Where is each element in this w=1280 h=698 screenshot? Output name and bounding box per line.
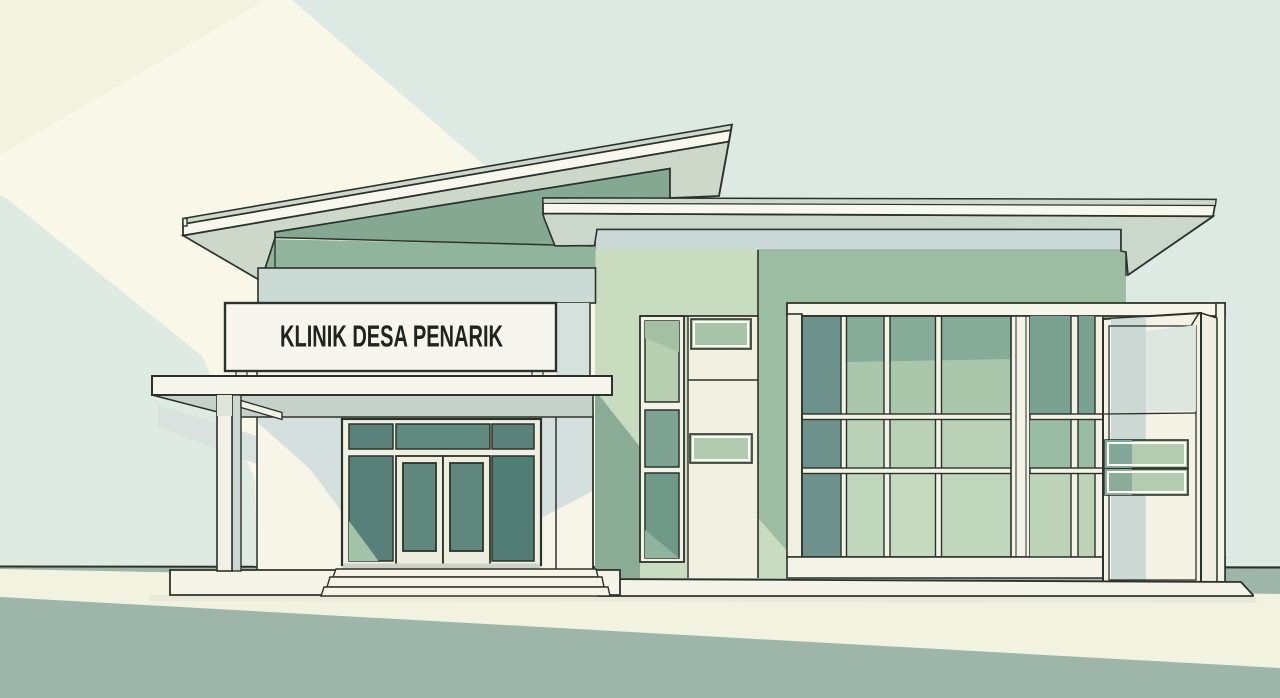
svg-text:KLINIK DESA PENARIK: KLINIK DESA PENARIK	[280, 319, 503, 354]
